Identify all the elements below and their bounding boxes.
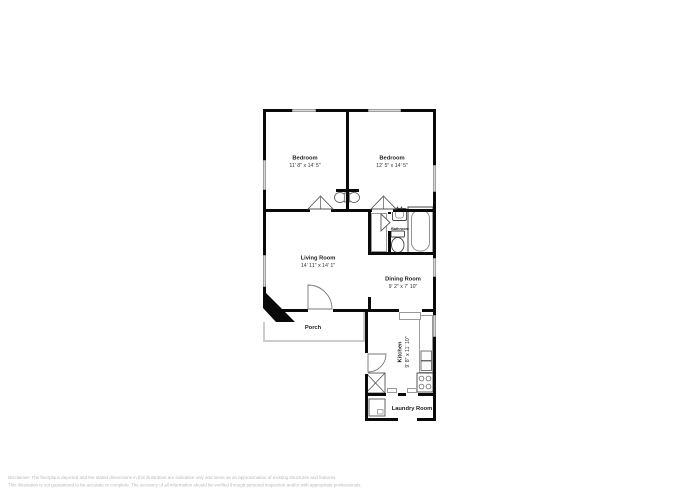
- disclaimer-line-2: This illustration is not guaranteed to b…: [8, 482, 700, 490]
- kitchen-sink: [420, 350, 433, 372]
- wall-bathroom-south: [368, 252, 436, 255]
- window-bedroom1-north: [292, 109, 316, 112]
- toilet: [389, 230, 407, 254]
- wall-main-top: [263, 109, 436, 112]
- window-living-west: [263, 255, 266, 287]
- door-swing-front: [306, 283, 334, 311]
- bathtub: [407, 206, 434, 255]
- stove: [416, 372, 434, 393]
- door-opening-dining-kitchen: [399, 309, 422, 312]
- wall-hall-west: [368, 209, 371, 255]
- label-bedroom1: Bedroom 11' 8" x 14' 5": [265, 154, 345, 171]
- door-opening-laundry-2: [406, 393, 418, 396]
- label-dining-room: Dining Room 9' 2" x 7' 10": [363, 275, 443, 292]
- door-swing-bedroom1: [307, 195, 334, 210]
- laundry-door-panel: [387, 388, 397, 393]
- door-swing-bedroom2: [370, 195, 397, 210]
- window-dining-east: [433, 258, 436, 277]
- window-bedroom2-north: [368, 109, 401, 112]
- fireplace: [262, 286, 298, 323]
- floor-plan: Fireplace Bedroom 11' 8" x 14' 5" Bedroo…: [0, 0, 700, 500]
- label-bedroom2: Bedroom 12' 5" x 14' 5": [352, 154, 432, 171]
- window-bedroom1-west: [263, 160, 266, 190]
- disclaimer: Disclaimer: The floorplans depicted and …: [8, 474, 700, 489]
- label-kitchen: Kitchen 9' 8" x 11' 10": [396, 312, 413, 392]
- water-heater: [365, 372, 386, 394]
- wall-laundry-north: [365, 393, 436, 396]
- label-living-room: Living Room 14' 11" x 14' 1": [278, 254, 358, 271]
- washer: [368, 398, 386, 417]
- wall-dining-west-stub: [368, 297, 371, 312]
- kitchen-step: [399, 312, 421, 320]
- window-bedroom2-east: [433, 165, 436, 192]
- wall-heater-stub: [336, 189, 359, 192]
- window-kitchen-east: [433, 315, 436, 337]
- door-opening-laundry-1: [386, 393, 398, 396]
- door-swing-kitchen-side: [366, 352, 389, 375]
- wall-bedrooms-living: [263, 209, 436, 212]
- door-opening-laundry-exterior: [398, 418, 417, 421]
- door-swing-bathroom: [380, 213, 392, 233]
- disclaimer-line-1: Disclaimer: The floorplans depicted and …: [8, 474, 700, 482]
- laundry-door-panel: [407, 388, 417, 393]
- wall-bedroom-divider: [346, 109, 349, 212]
